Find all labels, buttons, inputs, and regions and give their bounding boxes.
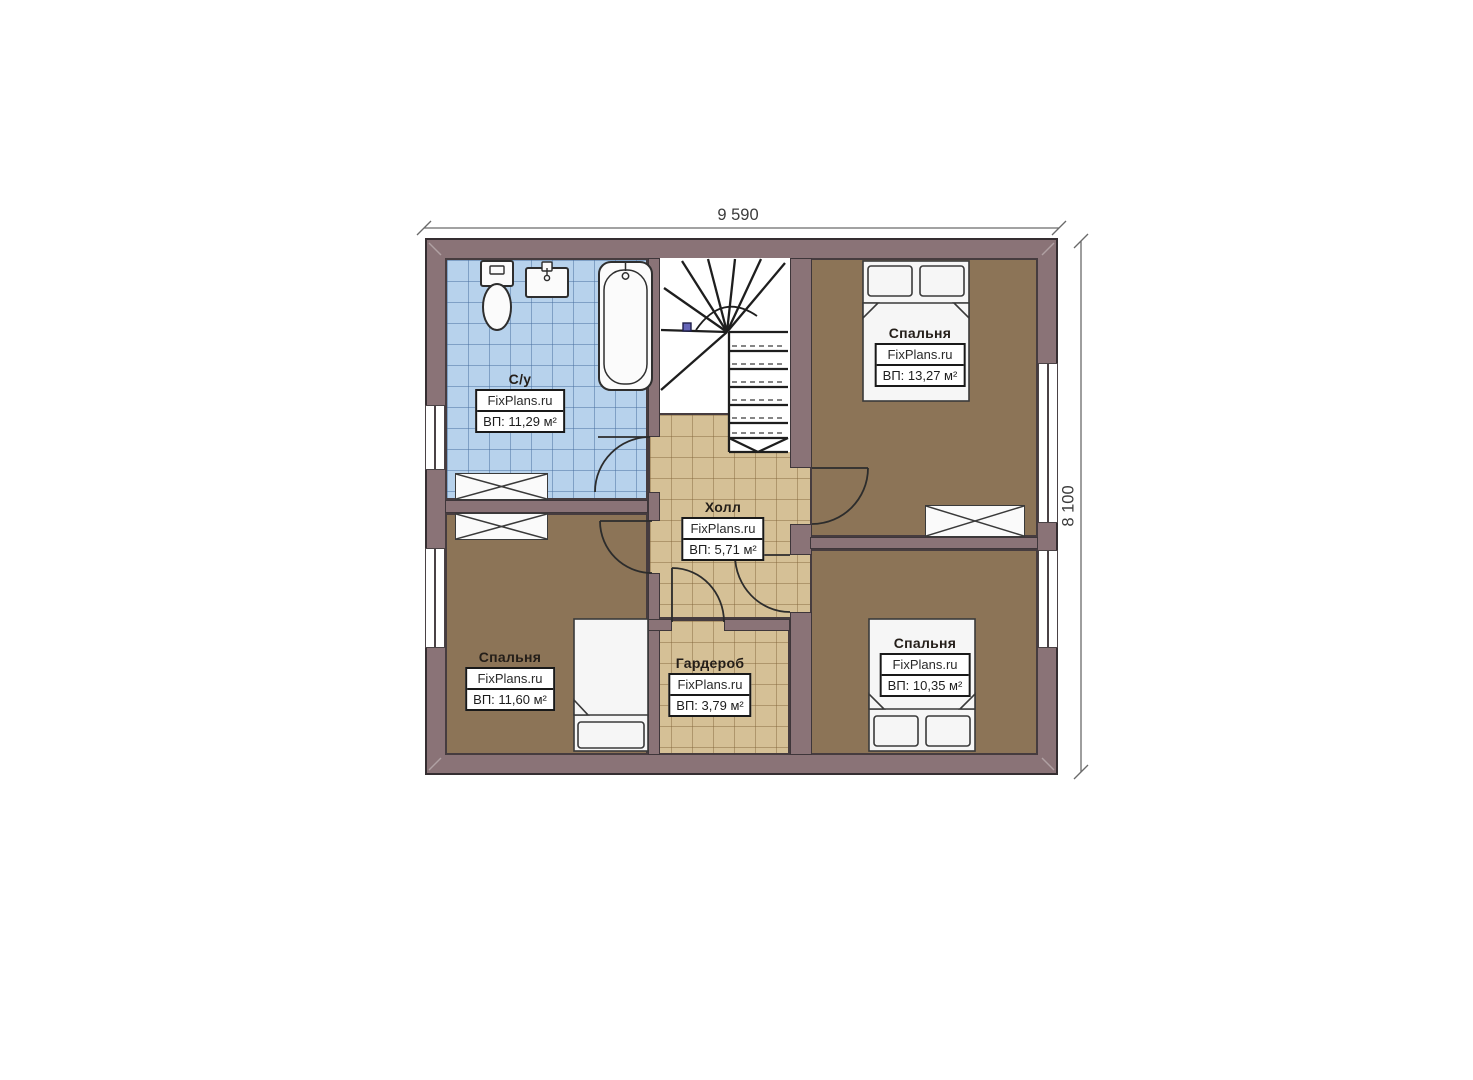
interior-wall xyxy=(648,573,660,755)
interior-wall xyxy=(724,619,790,631)
watermark: FixPlans.ru xyxy=(882,655,969,674)
interior-wall xyxy=(648,619,672,631)
dimension-width-label: 9 590 xyxy=(717,206,758,225)
toilet-symbol xyxy=(479,259,515,333)
room-name: Спальня xyxy=(889,326,952,341)
interior-wall xyxy=(648,492,660,521)
closet-box xyxy=(455,473,548,500)
floor-plan-canvas: С/у FixPlans.ru ВП: 11,29 м² Спальня Fix… xyxy=(0,0,1473,1080)
closet-box xyxy=(925,505,1025,537)
interior-wall xyxy=(790,612,812,755)
watermark: FixPlans.ru xyxy=(877,345,964,364)
watermark: FixPlans.ru xyxy=(477,391,563,410)
room-area: ВП: 11,60 м² xyxy=(467,688,553,709)
stairwell-floor xyxy=(660,258,790,413)
watermark: FixPlans.ru xyxy=(683,519,762,538)
window xyxy=(425,405,445,470)
window xyxy=(1038,363,1058,523)
room-info-box: FixPlans.ru ВП: 3,79 м² xyxy=(668,673,751,717)
interior-wall xyxy=(445,500,648,513)
room-label-bedroom-bottom-right: Спальня FixPlans.ru ВП: 10,35 м² xyxy=(880,636,971,697)
interior-wall xyxy=(810,537,1038,549)
room-info-box: FixPlans.ru ВП: 10,35 м² xyxy=(880,653,971,697)
room-label-hall: Холл FixPlans.ru ВП: 5,71 м² xyxy=(681,500,764,561)
room-info-box: FixPlans.ru ВП: 5,71 м² xyxy=(681,517,764,561)
interior-wall xyxy=(790,258,812,468)
bathtub-symbol xyxy=(597,260,654,392)
dimension-height-label: 8 100 xyxy=(1060,485,1079,526)
room-area: ВП: 3,79 м² xyxy=(670,694,749,715)
stair-run-floor xyxy=(729,413,790,452)
room-label-bathroom: С/у FixPlans.ru ВП: 11,29 м² xyxy=(475,372,565,433)
room-name: Гардероб xyxy=(676,656,745,671)
closet-box xyxy=(455,513,548,540)
room-info-box: FixPlans.ru ВП: 13,27 м² xyxy=(875,343,966,387)
closet-cross xyxy=(456,514,547,539)
room-area: ВП: 13,27 м² xyxy=(877,364,964,385)
room-name: Спальня xyxy=(479,650,542,665)
window xyxy=(425,548,445,648)
interior-wall xyxy=(790,524,812,555)
room-name: Спальня xyxy=(894,636,957,651)
sink-symbol xyxy=(524,261,570,299)
room-name: С/у xyxy=(509,372,532,387)
room-area: ВП: 10,35 м² xyxy=(882,674,969,695)
room-area: ВП: 11,29 м² xyxy=(477,410,563,431)
room-label-wardrobe: Гардероб FixPlans.ru ВП: 3,79 м² xyxy=(668,656,751,717)
window xyxy=(1038,550,1058,648)
watermark: FixPlans.ru xyxy=(670,675,749,694)
room-label-bedroom-top-right: Спальня FixPlans.ru ВП: 13,27 м² xyxy=(875,326,966,387)
room-info-box: FixPlans.ru ВП: 11,60 м² xyxy=(465,667,555,711)
room-info-box: FixPlans.ru ВП: 11,29 м² xyxy=(475,389,565,433)
watermark: FixPlans.ru xyxy=(467,669,553,688)
closet-cross xyxy=(456,474,547,499)
room-label-bedroom-bottom-left: Спальня FixPlans.ru ВП: 11,60 м² xyxy=(465,650,555,711)
room-name: Холл xyxy=(705,500,741,515)
bed-single xyxy=(573,618,649,752)
room-area: ВП: 5,71 м² xyxy=(683,538,762,559)
closet-cross xyxy=(926,506,1024,536)
